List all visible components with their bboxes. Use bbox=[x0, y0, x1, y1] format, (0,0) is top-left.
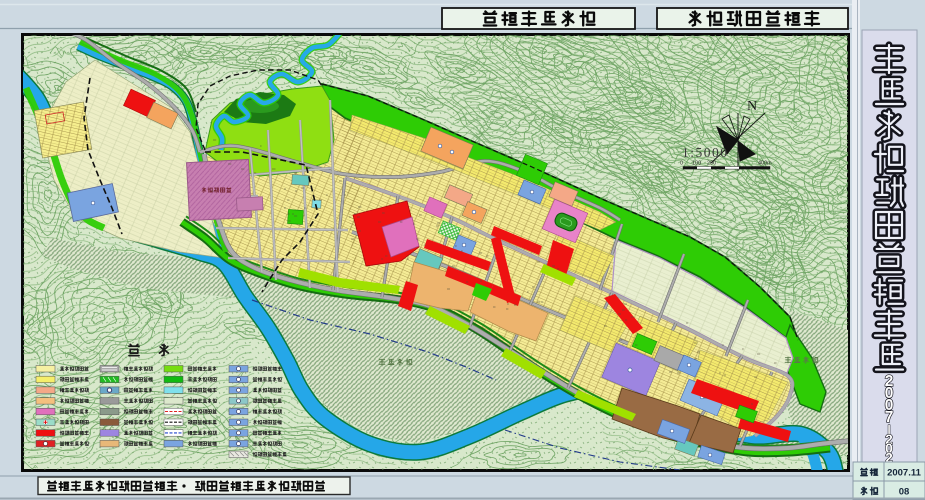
svg-text:100: 100 bbox=[692, 161, 701, 167]
svg-text:N: N bbox=[747, 99, 757, 114]
svg-text:200: 200 bbox=[707, 161, 716, 167]
svg-text:1:5000: 1:5000 bbox=[682, 145, 729, 160]
svg-text:400m: 400m bbox=[758, 161, 772, 167]
svg-text:2007.11: 2007.11 bbox=[887, 468, 922, 479]
svg-text:08: 08 bbox=[899, 487, 910, 498]
svg-text:0: 0 bbox=[680, 161, 683, 167]
